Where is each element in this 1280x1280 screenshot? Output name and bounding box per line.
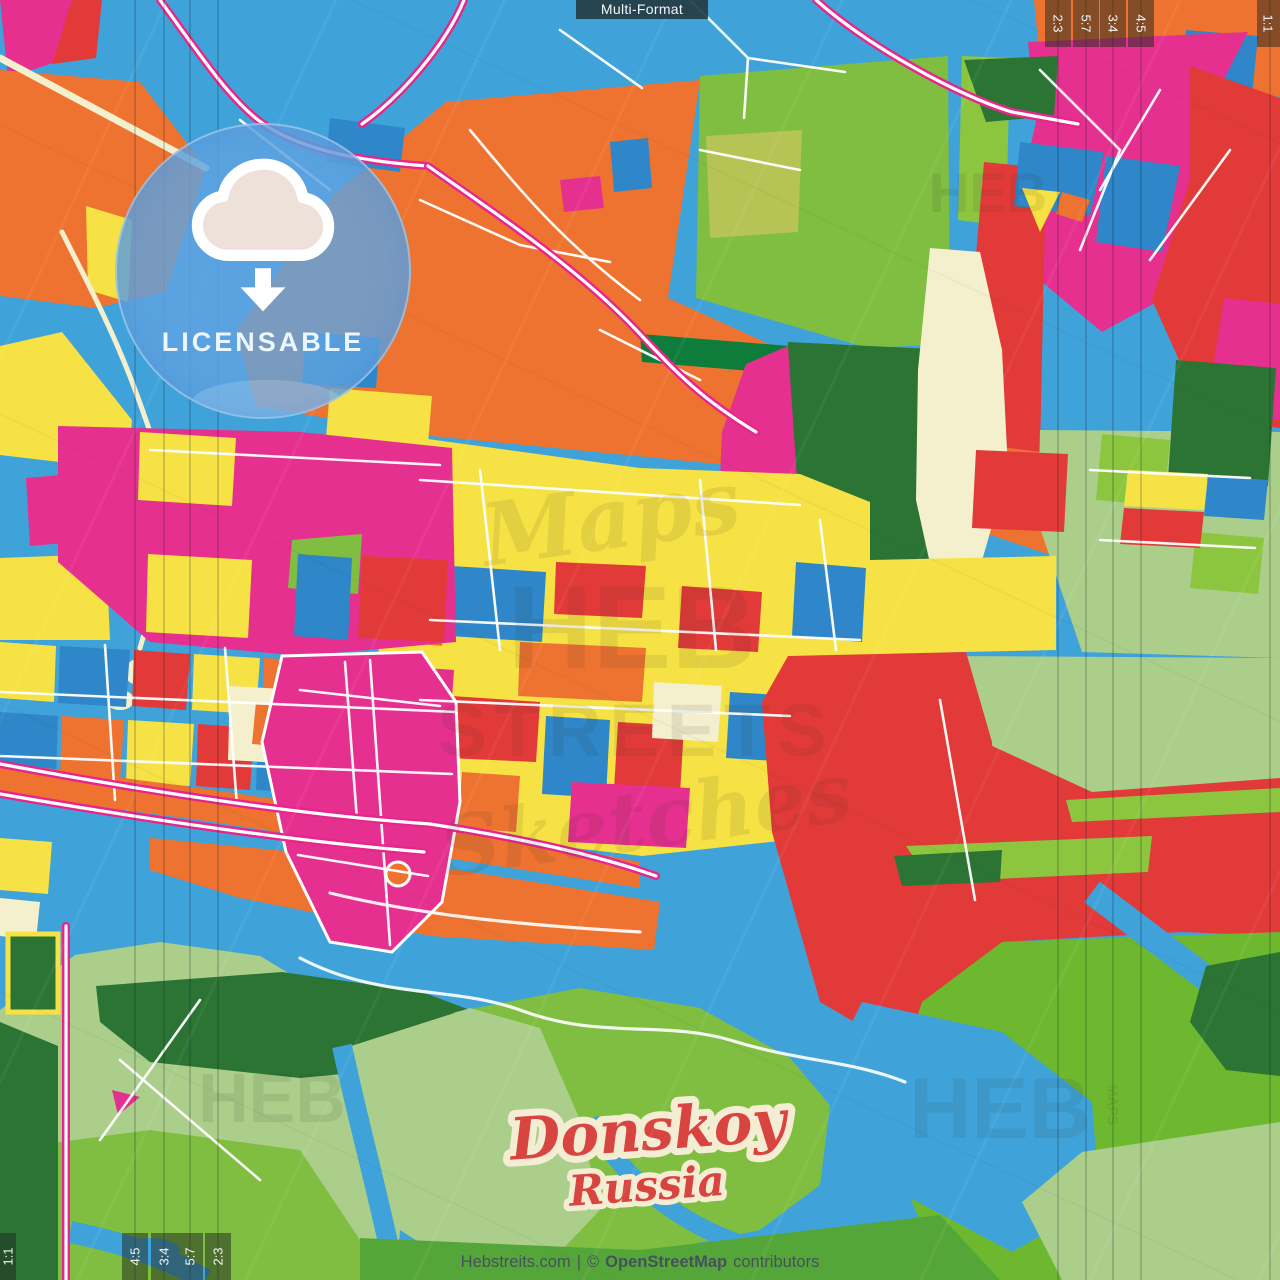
watermark-line-heb: HEB [507, 562, 756, 694]
crop-ratio-label: 1:1 [1261, 14, 1276, 32]
watermark-side-label: MAPS [1105, 1085, 1121, 1125]
crop-ratio-label: 2:3 [1050, 14, 1065, 32]
crop-ratio-chip-2-3: 2:3 [1045, 0, 1071, 47]
licensable-label: LICENSABLE [162, 327, 365, 358]
format-badge: Multi-Format [576, 0, 708, 19]
attribution-source: OpenStreetMap [605, 1253, 727, 1272]
crop-ratio-label: 5:7 [1078, 14, 1093, 32]
map-preview: Maps HEB STREETS Sketches HEB HEB MAPS H… [0, 0, 1280, 1280]
crop-ratio-label: 3:4 [1105, 14, 1120, 32]
attribution-separator: | [577, 1253, 581, 1272]
badge-glow [192, 380, 342, 419]
attribution-copyright: © [587, 1253, 599, 1272]
attribution-bar: Hebstreits.com | © OpenStreetMap contrib… [0, 1250, 1280, 1274]
crop-ratio-chip-4-5: 4:5 [1128, 0, 1154, 47]
crop-ratio-chip-5-7: 5:7 [1073, 0, 1099, 47]
crop-ratio-label: 4:5 [1133, 14, 1148, 32]
watermark-bottom-left: HEB [198, 1059, 346, 1137]
watermark-top-right: HEB [929, 161, 1047, 224]
attribution-suffix: contributors [733, 1253, 819, 1272]
attribution-site: Hebstreits.com [461, 1253, 571, 1272]
licensable-badge: LICENSABLE [115, 123, 411, 419]
watermark-bottom-right: HEB [909, 1061, 1091, 1157]
crop-ratio-chip-1-1-top: 1:1 [1257, 0, 1280, 47]
cloud-download-icon [183, 153, 343, 321]
crop-ratio-chip-3-4: 3:4 [1100, 0, 1126, 47]
